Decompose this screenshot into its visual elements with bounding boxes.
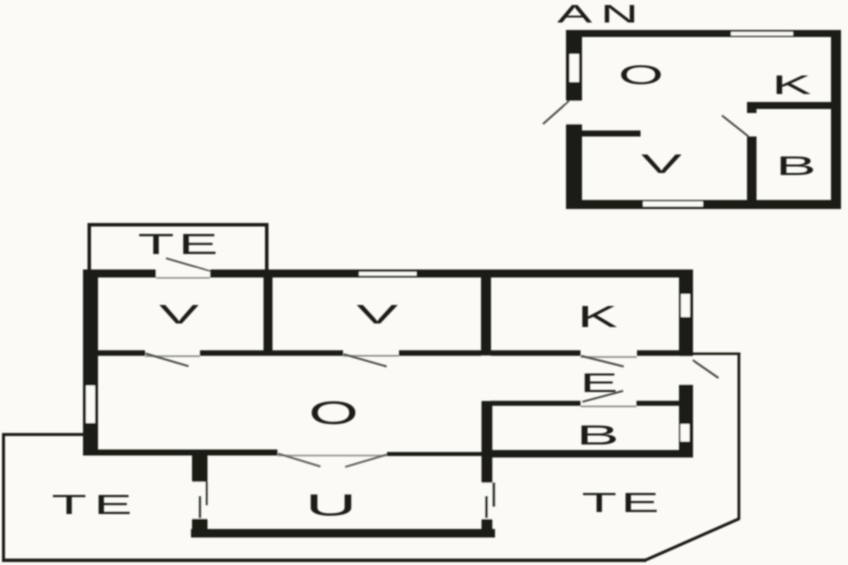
svg-text:TE: TE xyxy=(52,489,140,521)
svg-text:K: K xyxy=(772,69,812,99)
svg-text:AN: AN xyxy=(557,0,647,28)
svg-text:V: V xyxy=(159,299,199,329)
svg-text:B: B xyxy=(776,150,817,180)
svg-text:O: O xyxy=(618,59,663,89)
svg-text:K: K xyxy=(577,300,617,334)
svg-text:V: V xyxy=(357,300,399,329)
svg-text:TE: TE xyxy=(582,487,664,519)
svg-text:V: V xyxy=(641,149,683,179)
svg-text:E: E xyxy=(580,368,618,398)
svg-text:O: O xyxy=(309,395,359,431)
svg-text:U: U xyxy=(305,487,356,522)
svg-text:B: B xyxy=(576,419,619,451)
svg-text:TE: TE xyxy=(138,228,222,260)
